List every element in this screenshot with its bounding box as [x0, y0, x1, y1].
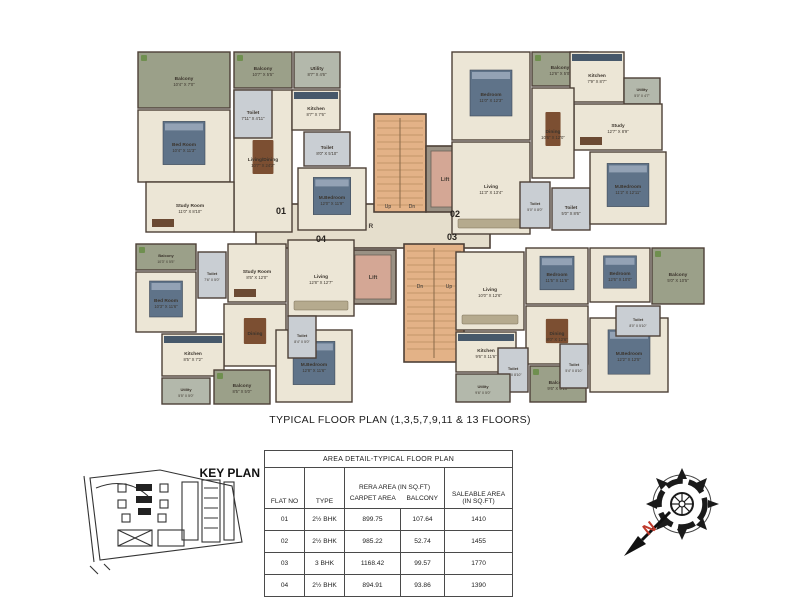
plant-icon	[139, 247, 145, 253]
wheel-spokes	[671, 493, 693, 515]
desk-icon	[580, 137, 602, 145]
room-kitchen: Kitchen7'9" X 8'7"	[570, 52, 624, 102]
room-bed-room: Bed Room10'3" X 11'6"	[136, 272, 196, 332]
room-dims: 11'3" X 13'4"	[479, 190, 503, 195]
room-dims: 8'0" X 12'6"	[546, 337, 568, 342]
cell-balcony: 52.74	[401, 531, 445, 553]
compass-north-icon: N	[612, 452, 727, 577]
room-toilet: Toilet8'0" X 5'10"	[304, 132, 350, 166]
room-dims: 12'2" X 12'5"	[617, 357, 641, 362]
cell-carpet: 1168.42	[345, 553, 401, 575]
room-dims: 5'0" X 10'5"	[667, 278, 689, 283]
room-dims: 10'6" X 12'0"	[541, 135, 565, 140]
building-block	[136, 484, 152, 491]
dining-table-icon	[253, 140, 274, 174]
kitchen-counter-icon	[294, 92, 338, 99]
room-dims: 11'0" X 12'3"	[479, 98, 503, 103]
room-toilet: Toilet8'4" X 5'0"	[288, 316, 316, 358]
plant-icon	[237, 55, 243, 61]
building-block	[138, 508, 151, 515]
sofa-icon	[458, 219, 524, 228]
kitchen-counter-icon	[164, 336, 222, 343]
dining-table-icon	[244, 318, 266, 344]
key-plan-title: KEY PLAN	[200, 466, 260, 480]
road-line	[84, 476, 94, 562]
room-name: Dining	[248, 331, 263, 337]
flat-number-label: 02	[450, 209, 460, 219]
room-dims: 10'7" X 24'2"	[251, 163, 275, 168]
room-toilet: Toilet5'0" X 8'0"	[520, 182, 550, 228]
room-dims: 10'4" X 11'3"	[172, 148, 196, 153]
room-bed-room: Bed Room10'4" X 11'3"	[138, 110, 230, 182]
room-dims: 12'0" X 11'9"	[320, 201, 344, 206]
desk-icon	[234, 289, 256, 297]
table-row: 04 2½ BHK 894.91 93.86 1390	[265, 575, 513, 597]
room-dims: 7'11" X 4'11"	[241, 116, 265, 121]
room-dims: 11'0" X 8'10"	[178, 209, 202, 214]
room-kitchen: Kitchen8'7" X 7'6"	[292, 90, 340, 130]
table-row: 02 2½ BHK 985.22 52.74 1455	[265, 531, 513, 553]
room-dims: 12'6" X 10'0"	[608, 277, 632, 282]
room-dims: 12'7" X 8'9"	[607, 129, 629, 134]
flat-03: Living10'0" X 12'6"Bedroom11'5" X 11'6"B…	[447, 232, 704, 402]
staircase: UpDn	[374, 114, 426, 212]
room-dims: 7'6" X 5'0"	[204, 278, 220, 282]
room-toilet: Toilet5'4" X 8'10"	[560, 344, 588, 388]
cell-balcony: 99.57	[401, 553, 445, 575]
col-header-flat-no: FLAT NO	[265, 468, 305, 509]
flat-02: Bedroom11'0" X 12'3"Balcony12'6" X 5'0"K…	[450, 52, 666, 234]
room-dims: 8'4" X 5'0"	[294, 340, 310, 344]
cell-saleable: 1770	[445, 553, 513, 575]
room-toilet: Toilet5'0" X 8'6"	[552, 188, 590, 230]
room-utility: Utility5'0" X 4'7"	[624, 78, 660, 104]
stairs-up-label: Up	[446, 284, 453, 290]
room-dims: 8'7" X 4'6"	[307, 72, 327, 77]
room-dining: Dining10'6" X 12'0"	[532, 88, 574, 178]
room-toilet: Toilet7'6" X 5'0"	[198, 252, 226, 298]
room-study: Study12'7" X 8'9"	[574, 104, 662, 150]
cell-balcony: 107.64	[401, 509, 445, 531]
lift: Lift	[350, 250, 396, 304]
room-dims: 8'0" X 5'10"	[629, 324, 647, 328]
plant-icon	[533, 369, 539, 375]
lift-label: Lift	[369, 275, 378, 281]
cell-saleable: 1455	[445, 531, 513, 553]
cell-carpet: 894.91	[345, 575, 401, 597]
area-table: AREA DETAIL-TYPICAL FLOOR PLAN FLAT NO T…	[264, 450, 513, 597]
room-dims: 8'5" X 5'0"	[232, 389, 252, 394]
cell-flat-no: 04	[265, 575, 305, 597]
room-toilet: Toilet7'11" X 4'11"	[234, 90, 272, 138]
sofa-icon	[462, 315, 518, 324]
room-name: Toilet	[569, 362, 580, 367]
room-name: Toilet	[530, 201, 541, 206]
flat-01: Living/Dining10'7" X 24'2"Balcony10'4" X…	[138, 52, 366, 232]
room-dims: 12'6" X 5'0"	[549, 71, 571, 76]
flat-number-label: 01	[276, 206, 286, 216]
floor-plan: CORRIDORUpDnUpDnLiftLiftLiving/Dining10'…	[0, 0, 800, 450]
room-dims: 9'6" X 5'0"	[475, 391, 491, 395]
table-title: AREA DETAIL-TYPICAL FLOOR PLAN	[265, 451, 513, 468]
room-balcony: Balcony8'5" X 5'0"	[214, 370, 270, 404]
room-dims: 10'4" X 7'0"	[173, 82, 195, 87]
room-name: Toilet	[508, 366, 519, 371]
cell-carpet: 899.75	[345, 509, 401, 531]
room-dims: 5'4" X 8'10"	[565, 369, 583, 373]
room-study-room: Study Room11'0" X 8'10"	[146, 182, 234, 232]
lift-label: Lift	[441, 177, 450, 183]
cell-flat-no: 02	[265, 531, 305, 553]
col-header-balcony: BALCONY	[401, 494, 445, 509]
room-dims: 8'0" X 5'10"	[316, 151, 338, 156]
desk-icon	[152, 219, 174, 227]
room-name: Toilet	[633, 317, 644, 322]
room-dims: 12'8" X 12'7"	[309, 280, 333, 285]
room-toilet: Toilet8'0" X 5'10"	[616, 306, 660, 336]
dining-table-icon	[545, 112, 560, 146]
table-row: 01 2½ BHK 899.75 107.64 1410	[265, 509, 513, 531]
room-utility: Utility8'7" X 4'6"	[294, 52, 340, 88]
sofa-icon	[294, 301, 348, 310]
room-name: Utility	[180, 387, 192, 392]
room-dims: 8'7" X 7'6"	[306, 112, 326, 117]
stairs-up-label: Up	[385, 204, 392, 210]
stairs-dn-label: Dn	[409, 204, 416, 210]
flat-04: Living12'8" X 12'7"Study Room8'5" X 12'0…	[136, 234, 354, 404]
col-header-saleable: SALEABLE AREA (IN SQ.FT)	[445, 468, 513, 509]
page: CORRIDORUpDnUpDnLiftLiftLiving/Dining10'…	[0, 0, 800, 600]
cell-type: 2½ BHK	[305, 575, 345, 597]
room-dims: 9'6" X 11'6"	[475, 354, 497, 359]
room-dims: 10'0" X 12'6"	[478, 293, 502, 298]
room-balcony: Balcony5'0" X 10'5"	[652, 248, 704, 304]
room-balcony: Balcony10'7" X 5'5"	[234, 52, 292, 88]
cell-saleable: 1390	[445, 575, 513, 597]
room-living: Living12'8" X 12'7"	[288, 240, 354, 316]
room-dims: 11'5" X 11'6"	[545, 278, 569, 283]
room-dims: 10'3" X 11'6"	[154, 304, 178, 309]
room-name: Toilet	[207, 271, 218, 276]
plant-icon	[141, 55, 147, 61]
plant-icon	[535, 55, 541, 61]
room-living: Living10'0" X 12'6"	[456, 252, 524, 330]
flat-number-label: 03	[447, 232, 457, 242]
cell-carpet: 985.22	[345, 531, 401, 553]
room-name: Toilet	[297, 333, 308, 338]
room-dims: 12'8" X 11'6"	[302, 368, 326, 373]
cell-balcony: 93.86	[401, 575, 445, 597]
room-name: Balcony	[158, 253, 174, 258]
room-study-room: Study Room8'5" X 12'0"	[228, 244, 286, 302]
kitchen-counter-icon	[572, 54, 622, 61]
cell-flat-no: 03	[265, 553, 305, 575]
room-dims: 10'3" X 5'5"	[157, 260, 175, 264]
room-name: Utility	[477, 384, 489, 389]
col-header-rera: RERA AREA (IN SQ.FT)	[345, 468, 445, 495]
stairs-dn-label: Dn	[417, 284, 424, 290]
room-dims: 11'2" X 12'11"	[615, 190, 641, 195]
room-dims: 5'5" X 5'0"	[178, 394, 194, 398]
plant-icon	[655, 251, 661, 257]
room-dims: 10'7" X 5'5"	[252, 72, 274, 77]
room-name: Utility	[636, 87, 648, 92]
room-living: Living11'3" X 13'4"	[452, 142, 530, 234]
staircase: UpDn	[404, 244, 464, 362]
col-header-carpet: CARPET AREA	[345, 494, 401, 509]
cell-saleable: 1410	[445, 509, 513, 531]
room-utility: Utility9'6" X 5'0"	[456, 374, 510, 402]
room-m-bedroom: M.Bedroom12'0" X 11'9"	[298, 168, 366, 230]
room-dims: 5'0" X 4'7"	[634, 94, 650, 98]
kitchen-counter-icon	[458, 334, 514, 341]
cell-type: 3 BHK	[305, 553, 345, 575]
key-plan: KEY PLAN	[60, 456, 262, 586]
room-dims: 8'5" X 12'0"	[246, 275, 268, 280]
room-dims: 7'9" X 8'7"	[587, 79, 607, 84]
plan-caption: TYPICAL FLOOR PLAN (1,3,5,7,9,11 & 13 FL…	[0, 414, 800, 426]
room-utility: Utility5'5" X 5'0"	[162, 378, 210, 404]
room-dims: 5'0" X 8'6"	[561, 211, 581, 216]
cell-type: 2½ BHK	[305, 531, 345, 553]
room-balcony: Balcony10'3" X 5'5"	[136, 244, 196, 270]
plant-icon	[217, 373, 223, 379]
room-dims: 8'5" X 7'2"	[183, 357, 203, 362]
room-balcony: Balcony10'4" X 7'0"	[138, 52, 230, 108]
room-bedroom: Bedroom11'5" X 11'6"	[526, 248, 588, 304]
north-letter: N	[640, 519, 660, 540]
room-bedroom: Bedroom11'0" X 12'3"	[452, 52, 530, 140]
room-m-bedroom: M.Bedroom11'2" X 12'11"	[590, 152, 666, 224]
room-dims: 5'0" X 8'0"	[527, 208, 543, 212]
flat-number-label: 04	[316, 234, 326, 244]
table-row: 03 3 BHK 1168.42 99.57 1770	[265, 553, 513, 575]
cell-type: 2½ BHK	[305, 509, 345, 531]
building-block	[136, 496, 152, 503]
col-header-type: TYPE	[305, 468, 345, 509]
cell-flat-no: 01	[265, 509, 305, 531]
room-bedroom: Bedroom12'6" X 10'0"	[590, 248, 650, 302]
